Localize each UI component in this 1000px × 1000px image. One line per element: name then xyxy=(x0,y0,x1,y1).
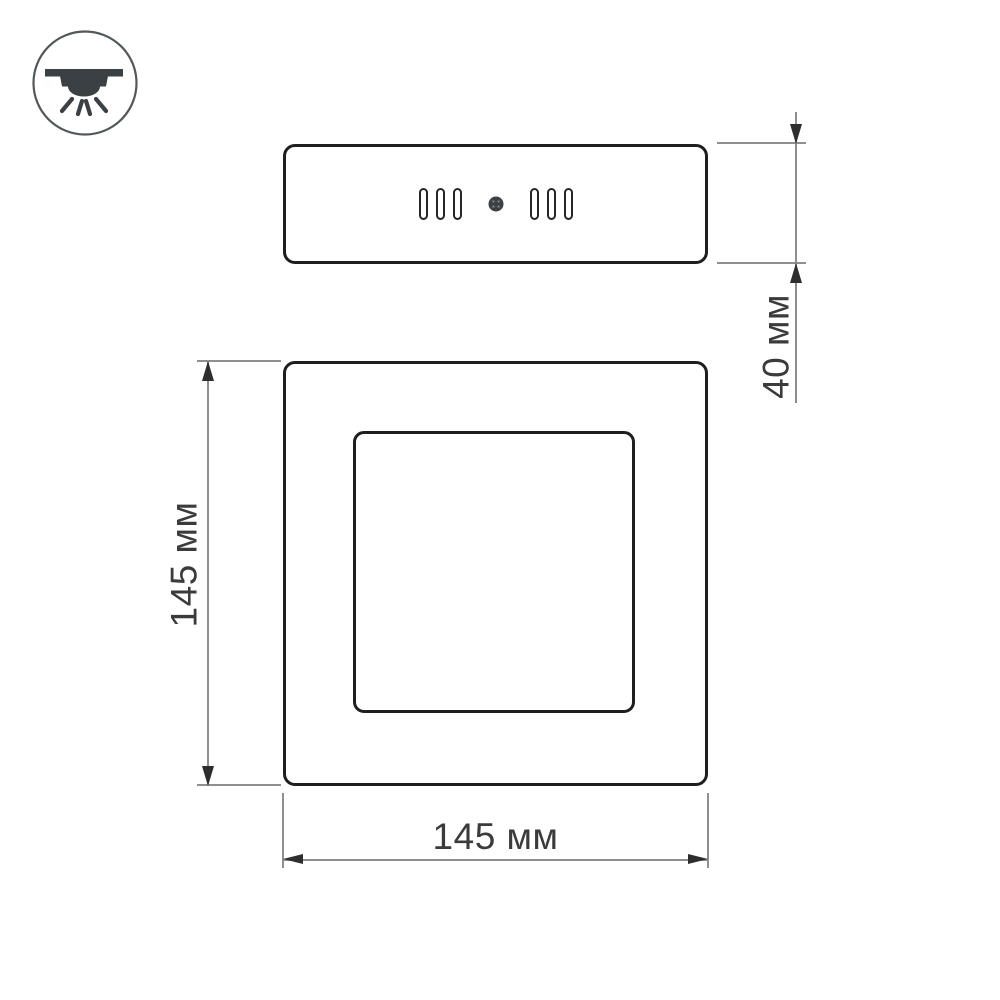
arrowhead-right-icon xyxy=(688,854,708,864)
led-panel-face xyxy=(353,431,635,713)
arrowhead-down-icon xyxy=(790,124,802,144)
arrowhead-left-icon xyxy=(283,854,303,864)
vent-row xyxy=(286,147,705,261)
vent-slot xyxy=(564,188,573,220)
dimension-label-height: 40 мм xyxy=(758,287,795,407)
dimension-line xyxy=(207,361,209,786)
dimension-label-side: 145 мм xyxy=(166,490,203,640)
arrowhead-down-icon xyxy=(202,766,214,786)
vent-slot xyxy=(453,188,462,220)
arrowhead-up-icon xyxy=(790,263,802,283)
front-view xyxy=(283,361,708,786)
vent-slot xyxy=(530,188,539,220)
vent-slots-left xyxy=(419,188,462,220)
dimension-line xyxy=(283,859,708,861)
dimension-label-width: 145 мм xyxy=(283,818,708,855)
arrowhead-up-icon xyxy=(202,361,214,381)
side-view xyxy=(283,144,708,264)
drawing-canvas: 40 мм 145 мм 145 мм xyxy=(0,0,1000,1000)
downlight-icon xyxy=(30,28,140,138)
downlight-icon-glyph xyxy=(30,28,140,138)
screw-icon xyxy=(488,196,504,212)
vent-slots-right xyxy=(530,188,573,220)
vent-slot xyxy=(547,188,556,220)
vent-slot xyxy=(419,188,428,220)
dimension-line xyxy=(795,144,797,263)
vent-slot xyxy=(436,188,445,220)
